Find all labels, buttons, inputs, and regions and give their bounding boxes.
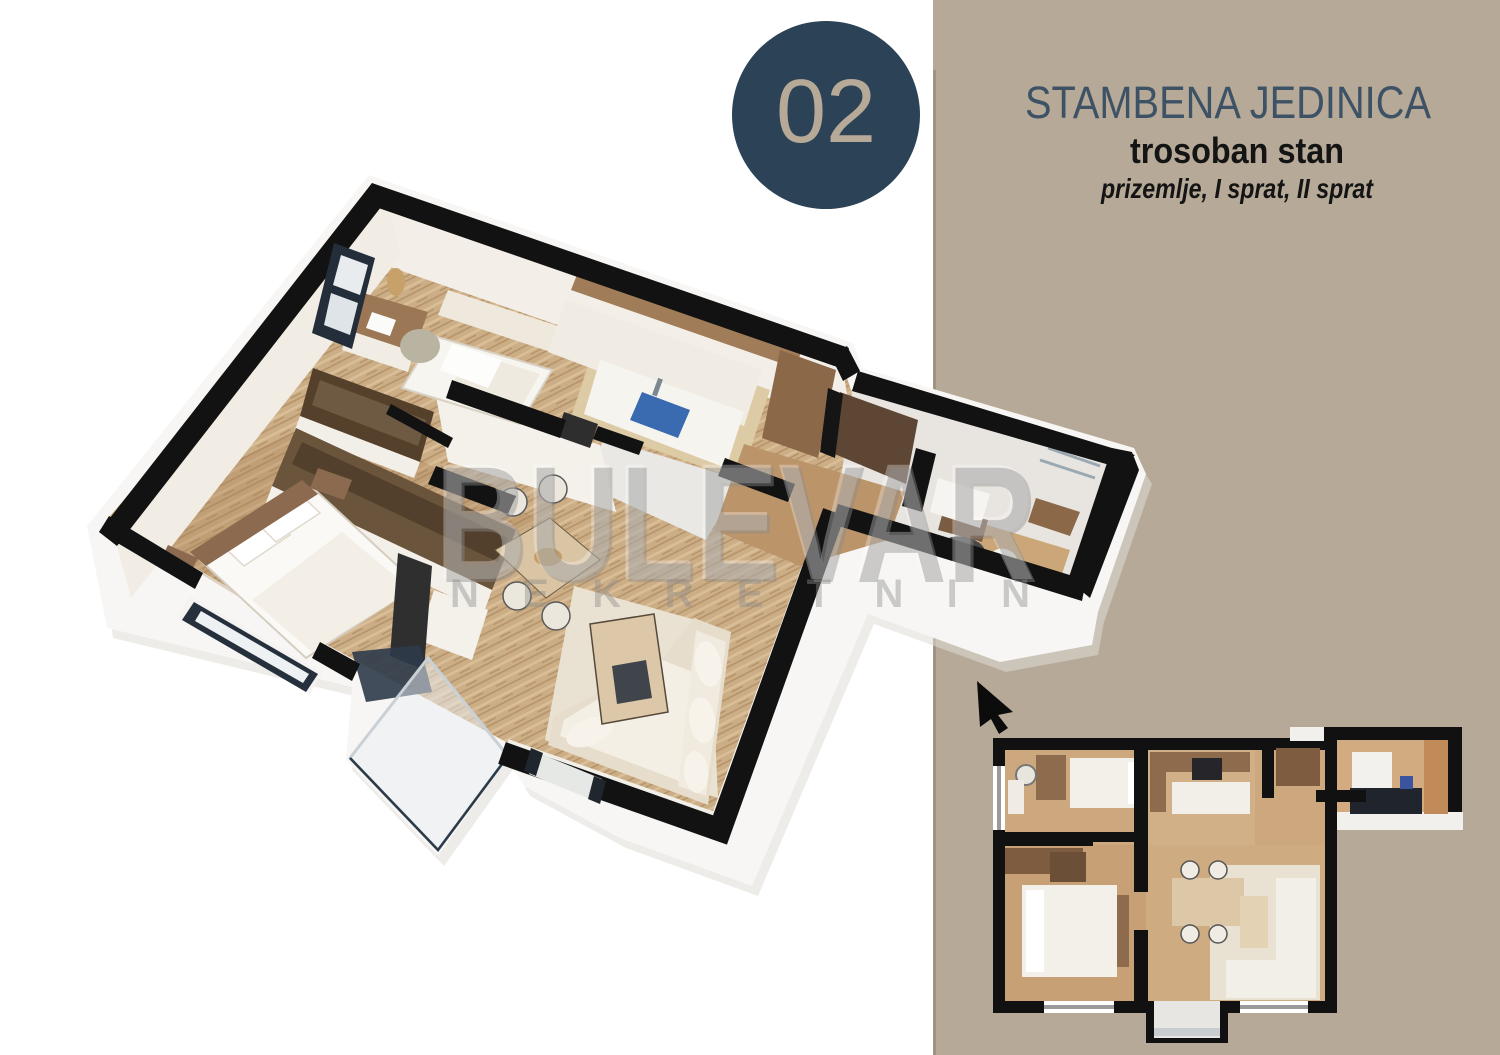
svg-text:trosoban stan: trosoban stan <box>1130 130 1344 171</box>
svg-text:prizemlje, I sprat, II sprat: prizemlje, I sprat, II sprat <box>1100 173 1374 204</box>
svg-text:STAMBENA JEDINICA: STAMBENA JEDINICA <box>1025 77 1431 128</box>
svg-text:02: 02 <box>776 62 876 162</box>
